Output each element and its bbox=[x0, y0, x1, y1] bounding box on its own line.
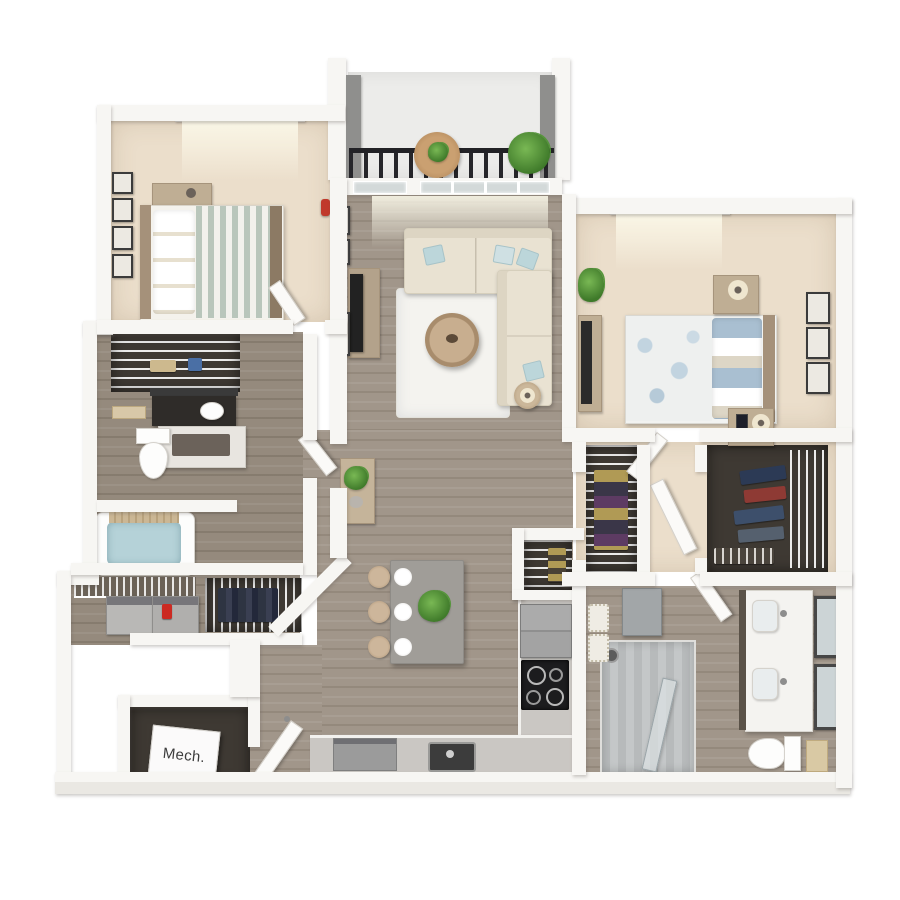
side-table-lamp bbox=[520, 388, 535, 403]
tv-screen bbox=[350, 274, 363, 352]
dishwasher bbox=[333, 738, 397, 771]
wall-outer-top-bedroom1 bbox=[97, 105, 345, 121]
island-place-setting-3 bbox=[394, 638, 412, 656]
double-vanity-cabinet-edge bbox=[739, 590, 746, 730]
bedroom2-headboard bbox=[763, 315, 775, 422]
bedroom2-lamp-top bbox=[728, 280, 748, 300]
wall-entry-column bbox=[230, 640, 260, 697]
kitchen-faucet bbox=[446, 750, 454, 758]
living-window-panes bbox=[420, 181, 550, 194]
bathtub-tray bbox=[109, 512, 179, 523]
island-centerpiece-plant bbox=[418, 590, 450, 622]
walkin-shoe-shelf bbox=[714, 548, 774, 564]
linen-closet-towels bbox=[150, 360, 176, 372]
wall-closetA-east bbox=[637, 445, 650, 572]
balcony-glass-door bbox=[353, 181, 407, 194]
bathtub-water bbox=[107, 522, 181, 565]
island-stool-2 bbox=[368, 601, 390, 623]
bedroom2-wall-frame-3 bbox=[806, 362, 830, 394]
red-vase bbox=[321, 199, 330, 216]
toilet2-bowl bbox=[748, 738, 786, 769]
linen-closet-towel-blue bbox=[188, 358, 202, 371]
hall-closet-clothes bbox=[594, 470, 628, 550]
island-place-setting-1 bbox=[394, 568, 412, 586]
sofa-pillow-2 bbox=[493, 244, 516, 265]
bedroom1-pillows bbox=[153, 210, 195, 314]
bedroom1-wall-frame-4 bbox=[112, 254, 133, 278]
floor-plan-render: Mech. bbox=[0, 0, 900, 900]
island-stool-3 bbox=[368, 636, 390, 658]
wall-closets-south-b bbox=[700, 572, 852, 586]
island-place-setting-2 bbox=[394, 603, 412, 621]
wall-bedroom1-bottom-a bbox=[97, 320, 293, 334]
wall-kitchen-divider-a bbox=[572, 442, 586, 472]
bedroom2-wall-frame-1 bbox=[806, 292, 830, 324]
bathroom2-storage-cabinet bbox=[622, 588, 662, 636]
mech-room-wall-right bbox=[248, 695, 260, 747]
wall-closets-south-a bbox=[562, 572, 655, 586]
cooktop-burner-1 bbox=[527, 666, 546, 685]
bathroom1-mirror bbox=[150, 388, 238, 396]
bathroom1-vanity-drawer bbox=[172, 434, 230, 456]
coat-closet-clothes bbox=[218, 588, 278, 622]
washer bbox=[106, 596, 153, 635]
bedroom1-wall-frame-2 bbox=[112, 198, 133, 222]
hall-console-bowl bbox=[349, 496, 363, 508]
wall-hall-west-lower bbox=[330, 488, 347, 558]
cooktop-burner-3 bbox=[526, 690, 541, 705]
balcony-potted-plant bbox=[508, 132, 550, 174]
wall-laundry-top bbox=[71, 563, 303, 575]
wall-bath1-east-a bbox=[303, 334, 317, 440]
detergent-bottle bbox=[162, 604, 172, 619]
bedroom1-wall-frame-3 bbox=[112, 226, 133, 250]
wall-bath1-divider bbox=[97, 500, 237, 512]
wall-bath1-east-b bbox=[303, 478, 317, 575]
wall-bedroom1-bottom-b bbox=[325, 320, 347, 334]
toilet2-tank bbox=[784, 736, 801, 771]
wall-bedroom2-south-b bbox=[700, 428, 852, 442]
wall-outer-right bbox=[836, 198, 852, 788]
bathroom2-basket-2 bbox=[588, 634, 609, 662]
bedroom1-striped-duvet bbox=[196, 206, 270, 318]
wall-bedroom2-south-a bbox=[562, 428, 655, 442]
vanity-faucet-1 bbox=[780, 610, 787, 617]
vanity-sink-1 bbox=[752, 600, 778, 632]
wall-kitchen-divider-b bbox=[572, 560, 586, 775]
bedroom2-pillows bbox=[712, 318, 762, 419]
wall-outer-bottom bbox=[55, 772, 850, 794]
dryer bbox=[152, 596, 199, 635]
bedroom1-wall-frame-1 bbox=[112, 172, 133, 194]
wall-outer-left-lower bbox=[57, 571, 71, 790]
bedroom1-window-light bbox=[182, 121, 298, 181]
wall-living-bedroom2 bbox=[562, 194, 576, 428]
cooktop-burner-4 bbox=[546, 688, 564, 706]
bedroom2-tv bbox=[581, 321, 592, 404]
wall-closetB-west-a bbox=[695, 445, 707, 472]
entry-door-handle bbox=[284, 716, 290, 722]
wall-outer-left-upper bbox=[97, 105, 111, 335]
bedroom1-headboard bbox=[140, 205, 151, 319]
refrigerator bbox=[520, 604, 572, 658]
coffee-table-decor bbox=[446, 334, 458, 343]
bathroom2-basket-1 bbox=[588, 604, 609, 632]
vanity-sink-2 bbox=[752, 668, 778, 700]
balcony-table-plant bbox=[428, 142, 448, 162]
bathroom1-towel-rack bbox=[112, 406, 146, 419]
bedroom2-wall-frame-2 bbox=[806, 327, 830, 359]
cooktop-burner-2 bbox=[549, 668, 563, 682]
walkin-closet-shelving bbox=[790, 450, 824, 568]
bathroom2-bath-mat bbox=[806, 740, 828, 772]
wall-outer-top-bedroom2 bbox=[576, 198, 852, 214]
bedroom1-clock bbox=[186, 188, 196, 198]
island-stool-1 bbox=[368, 566, 390, 588]
wall-bedroom1-living bbox=[330, 178, 347, 444]
wall-outer-left-middle bbox=[83, 321, 97, 585]
bedroom2-floral-duvet bbox=[626, 316, 712, 421]
bathroom1-sink bbox=[200, 402, 224, 420]
bedroom2-window-light bbox=[616, 214, 722, 270]
hall-console-plant bbox=[344, 466, 368, 490]
vanity-faucet-2 bbox=[780, 678, 787, 685]
bedroom2-plant bbox=[578, 268, 604, 302]
